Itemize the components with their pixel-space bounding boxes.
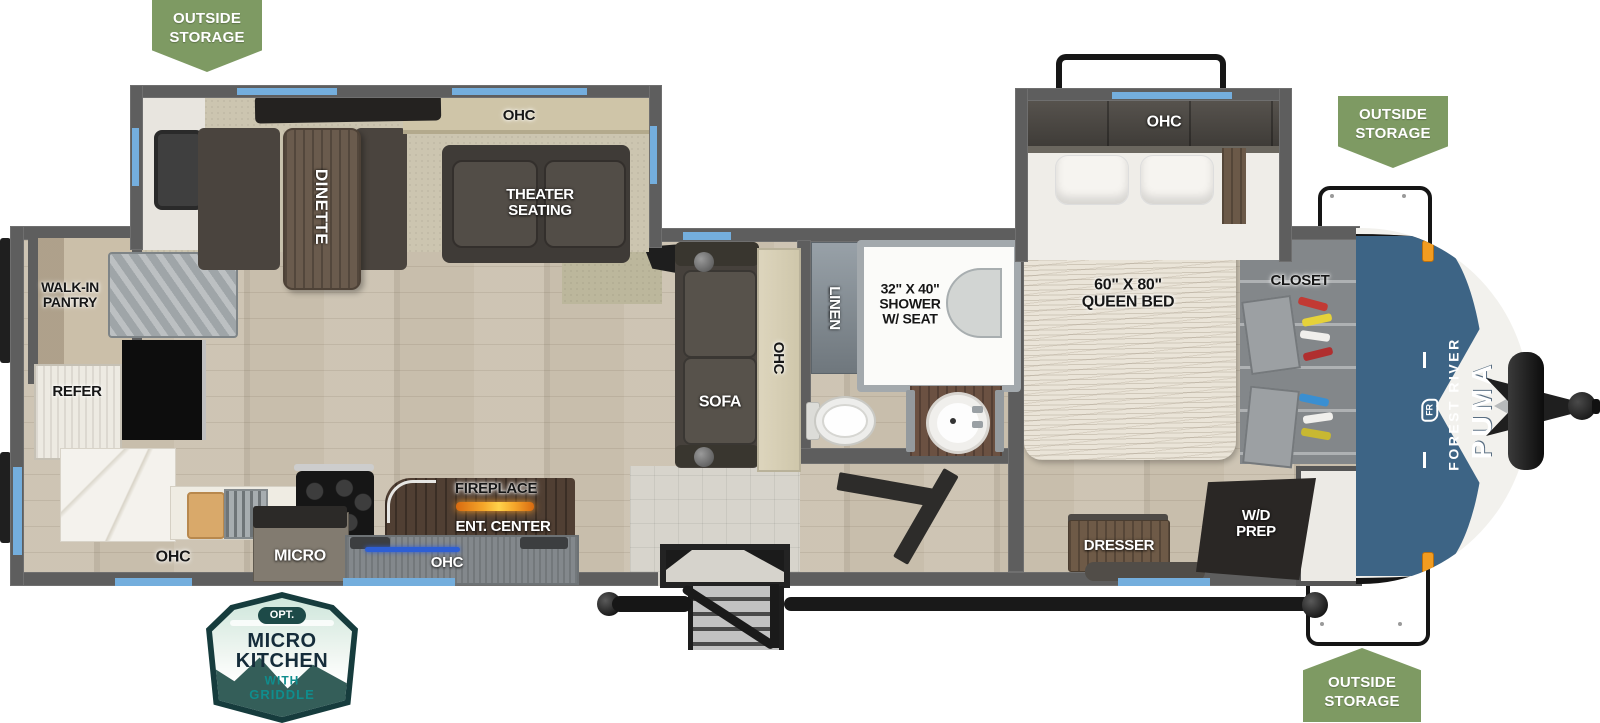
sofa-cushion (683, 270, 757, 358)
closet-label: CLOSET (1270, 273, 1329, 289)
sofa-armrest (675, 445, 759, 467)
micro-label: MICRO (274, 547, 326, 564)
refrigerator (34, 364, 122, 460)
tv (122, 340, 206, 440)
window-accent (343, 578, 455, 586)
cup-holder-icon (694, 447, 714, 467)
bed-side-post (1222, 148, 1246, 224)
outside-storage-badge-top-left: OUTSIDE STORAGE (152, 0, 262, 72)
microwave-top (253, 506, 347, 528)
queen-bed (1024, 240, 1236, 460)
micro-kitchen-line4: GRIDDLE (249, 688, 315, 702)
closet-shelf-door (1242, 386, 1300, 469)
window-accent (237, 88, 337, 95)
forest-river-label: FOREST RIVER (1446, 337, 1461, 470)
screw-icon (1320, 622, 1324, 626)
pillow (1140, 155, 1214, 205)
front-cap: FR FOREST RIVER PUMA (1356, 228, 1530, 584)
wd-prep-label: W/D PREP (1236, 508, 1276, 540)
fireplace-flame-icon (456, 502, 534, 511)
shower-label: 32" X 40" SHOWER W/ SEAT (879, 281, 940, 326)
bed-slide-wall-left (1015, 88, 1028, 262)
micro-kitchen-line2: KITCHEN (236, 651, 328, 673)
outside-storage-label: OUTSIDE STORAGE (1338, 106, 1448, 144)
vanity-side (995, 390, 1004, 452)
refer-label: REFER (52, 384, 101, 400)
closet-shelf-door (1241, 295, 1301, 375)
dresser-label: DRESSER (1084, 538, 1154, 554)
logo-dash (1423, 452, 1426, 468)
awning-rail-end-cap (1302, 592, 1328, 618)
window-accent (13, 467, 22, 555)
step-post (770, 584, 779, 648)
dinette-bench (198, 128, 280, 270)
kitchen-counter-left (60, 448, 176, 542)
outside-storage-badge-bottom-right: OUTSIDE STORAGE (1303, 648, 1421, 722)
led-strip-icon (365, 547, 460, 552)
cutting-board (187, 492, 225, 539)
faucet-icon (972, 406, 983, 413)
outside-storage-badge-top-right: OUTSIDE STORAGE (1338, 96, 1448, 168)
fireplace-label: FIREPLACE (455, 481, 537, 497)
ohc-ent-label: OHC (431, 555, 463, 571)
bed-slide-wall-right (1279, 88, 1292, 262)
awning-rail (784, 597, 1316, 611)
sofa-label: SOFA (699, 393, 741, 410)
walk-in-pantry-label: WALK-IN PANTRY (41, 280, 99, 310)
awning-rail (612, 596, 692, 612)
theater-label: THEATER SEATING (506, 187, 574, 219)
micro-kitchen-line3: WITH (265, 675, 300, 688)
opt-pill: OPT. (258, 607, 306, 624)
window-accent (650, 126, 657, 184)
amber-marker-light (1422, 552, 1434, 574)
faucet-icon (972, 421, 983, 428)
vanity-side (906, 390, 915, 452)
stove-handle (294, 464, 374, 471)
micro-kitchen-badge: OPT. MICRO KITCHEN WITH GRIDDLE (206, 592, 358, 723)
ohc-dinette-label: OHC (503, 108, 535, 124)
outside-storage-label: OUTSIDE STORAGE (1303, 674, 1421, 712)
floorplan-scene: WALK-IN PANTRY REFER OHC MICRO FIREPLACE… (0, 0, 1600, 723)
slide-window (154, 130, 204, 210)
window-accent (115, 578, 192, 586)
ohc-sofa-label: OHC (770, 342, 786, 374)
tongue-jack (1508, 352, 1544, 470)
linen-label: LINEN (826, 286, 842, 330)
hitch-coupler-stub (1592, 399, 1600, 414)
fr-logo-icon: FR (1411, 398, 1438, 421)
screw-icon (1398, 622, 1402, 626)
ohc-bedroom-label: OHC (1147, 113, 1182, 130)
ohc-kitchen-label: OHC (156, 548, 191, 565)
outside-storage-label: OUTSIDE STORAGE (152, 10, 262, 48)
amber-marker-light (1422, 240, 1434, 262)
puma-label: PUMA (1467, 361, 1497, 459)
sink-drain-icon (950, 418, 956, 424)
speaker-icon (520, 537, 568, 549)
sofa-armrest (675, 242, 759, 266)
logo-dash (1423, 352, 1426, 368)
dinette-label: DINETTE (312, 169, 330, 245)
window-accent (1118, 578, 1210, 586)
cup-holder-icon (694, 252, 714, 272)
window-accent (132, 128, 139, 186)
pillow (1055, 155, 1129, 205)
wall-top-front (1288, 226, 1360, 240)
window-accent (1112, 92, 1232, 99)
queen-bed-label: 60" X 80" QUEEN BED (1082, 277, 1174, 312)
toilet-icon (814, 396, 876, 446)
window-accent (452, 88, 587, 95)
dinette-bench (355, 128, 407, 270)
ent-center-label: ENT. CENTER (455, 519, 550, 535)
screw-icon (1330, 194, 1334, 198)
window-accent (683, 232, 731, 240)
screw-icon (1402, 194, 1406, 198)
